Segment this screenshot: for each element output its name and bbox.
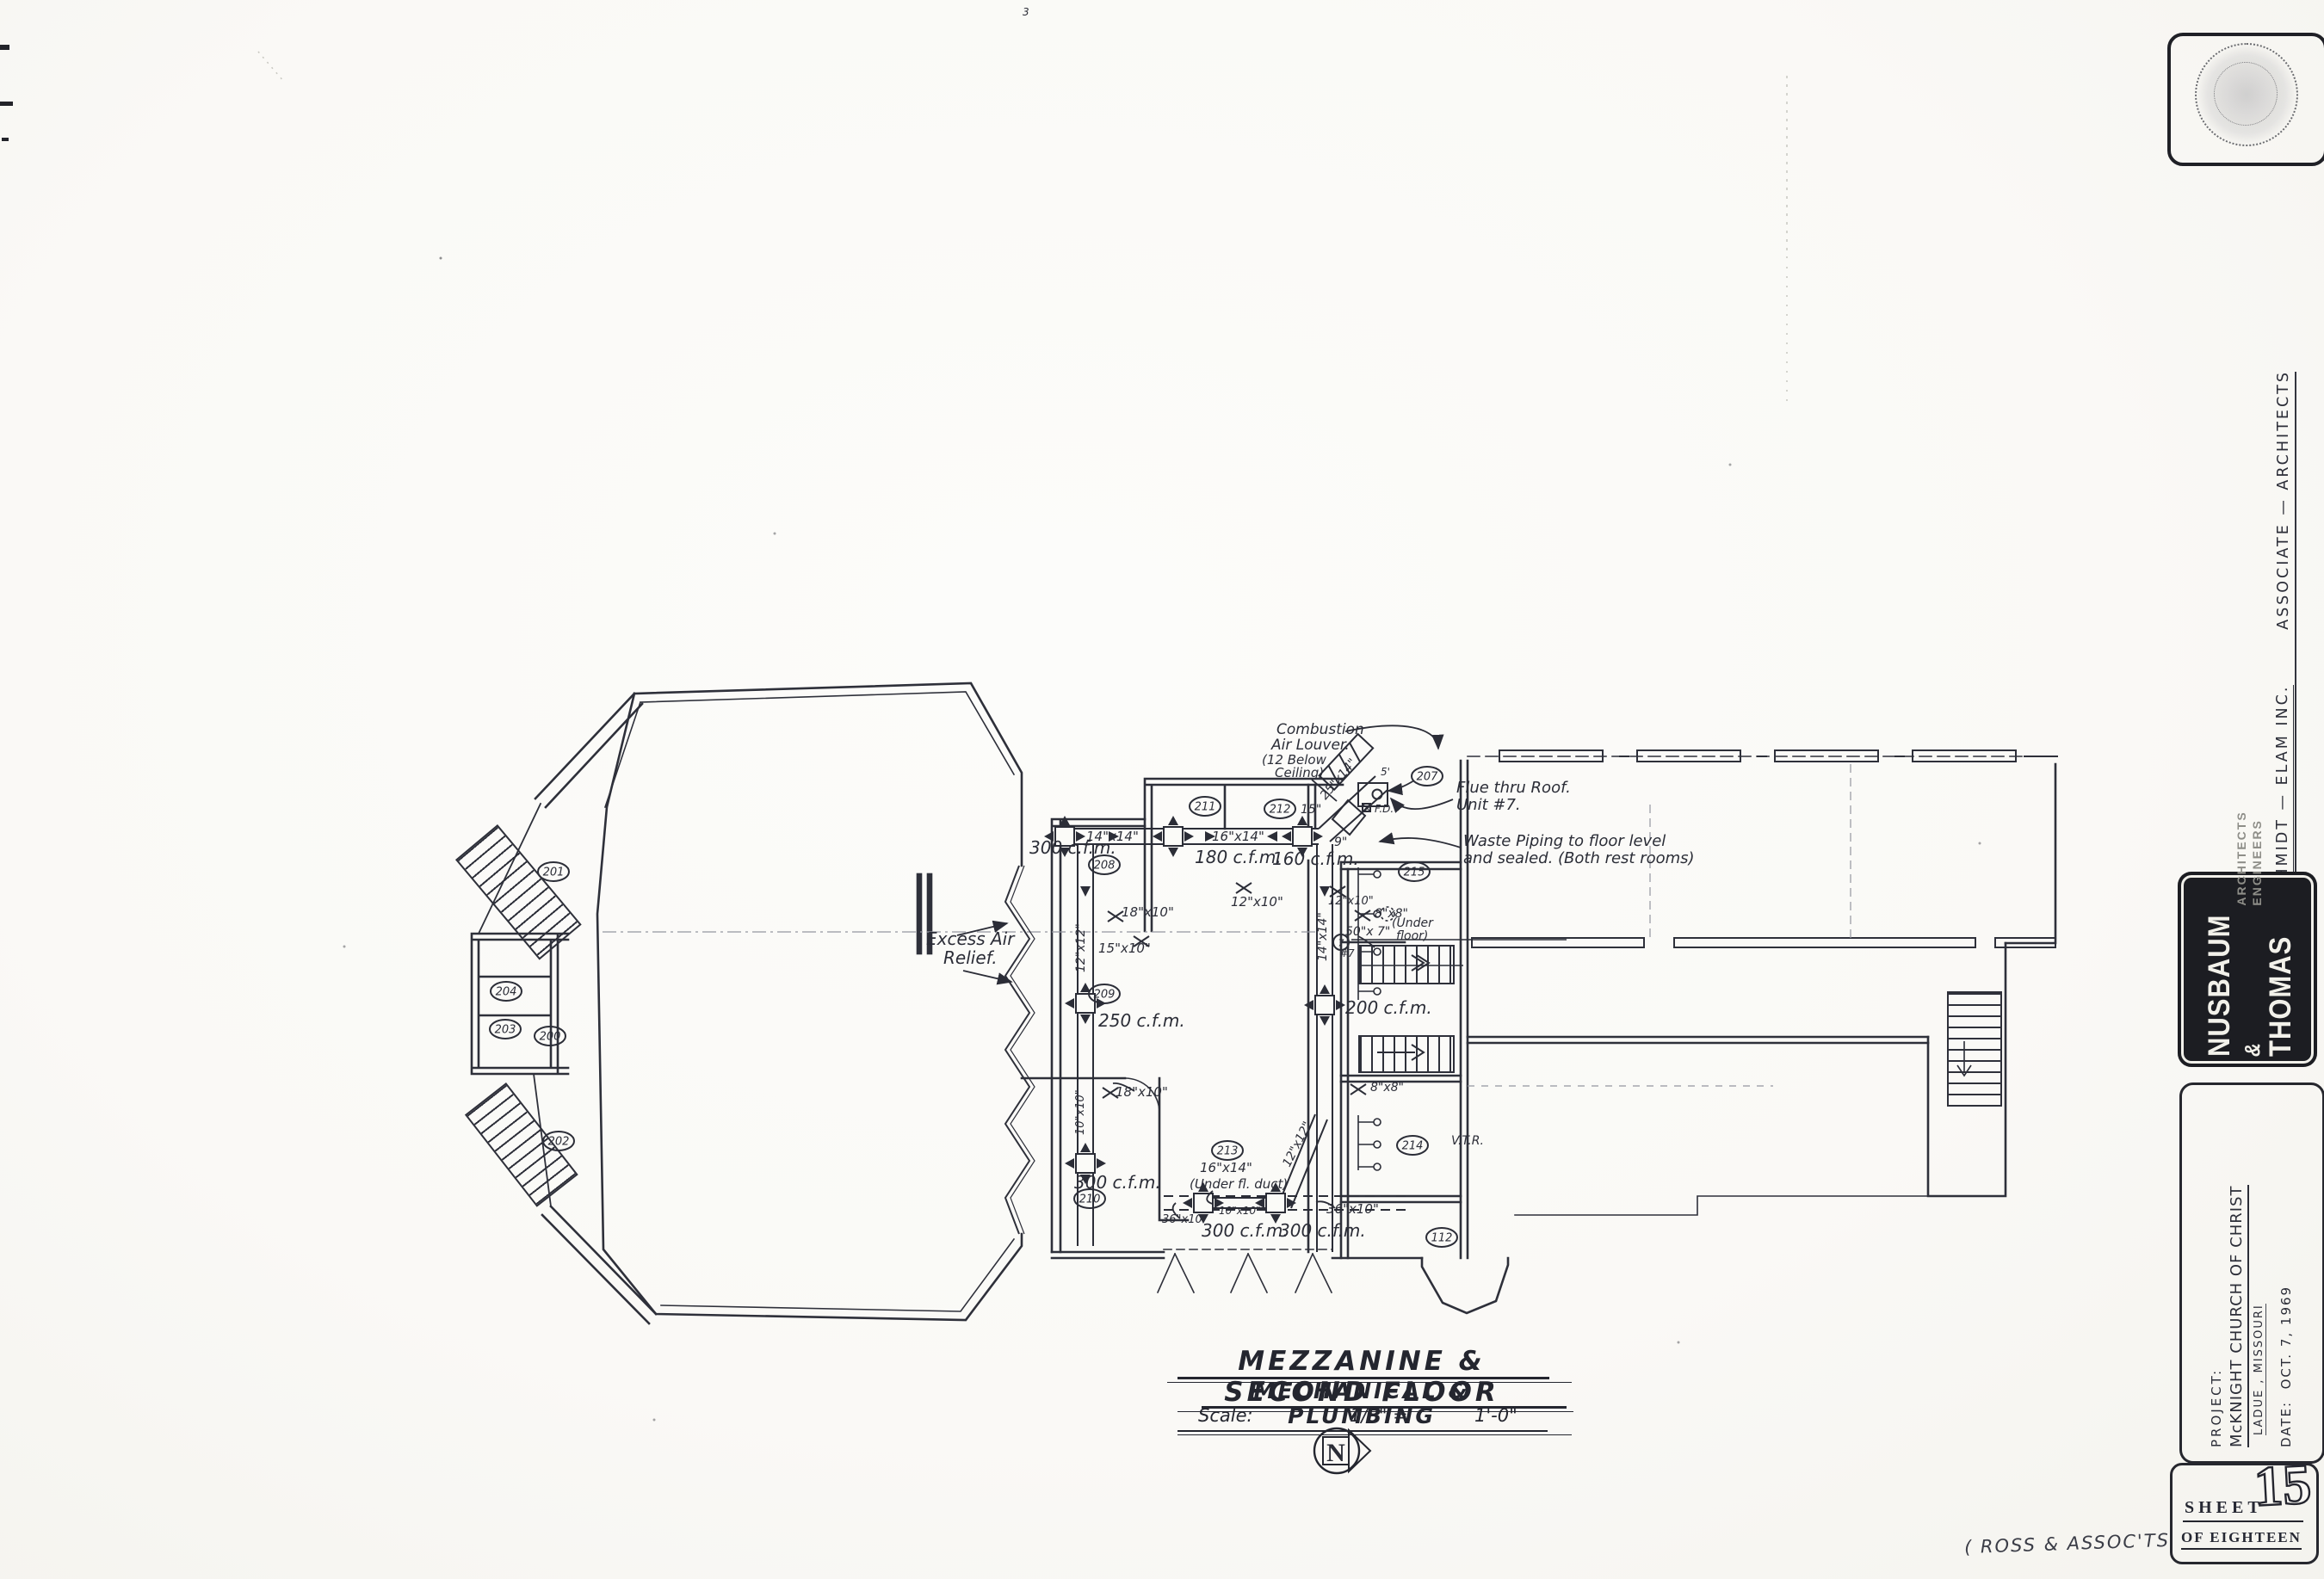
architect-side-text: SCHMIDT — ELAM INC. ASSOCIATE — ARCHITEC… [2271,370,2296,905]
stair-central-upper [1358,945,1455,984]
firm-name-1: NUSBAUM [2203,915,2234,1057]
auditorium-outline [597,683,1022,1320]
scale-underline [1177,1430,1548,1432]
room-number: 210 [1079,1194,1101,1206]
room-number: 112 [1431,1232,1453,1245]
firm-sub-architects: ARCHITECTS [2234,811,2249,905]
plan-label: 300 c.f.m. [1202,1220,1289,1241]
plan-label: Air Louver. [1270,737,1350,754]
plan-label: and sealed. (Both rest rooms) [1463,849,1695,867]
plan-label: 16"x14" [1212,829,1264,844]
firm-ampersand: & [2240,1042,2265,1057]
room-number: 204 [496,986,517,999]
plan-label: Unit #7. [1456,796,1521,814]
firm-logo-text: NUSBAUM & THOMAS ARCHITECTS ENGINEERS [2190,881,2309,1057]
plan-label: 36"x10" [1162,1213,1208,1226]
stair-east [1947,991,2002,1107]
stair-central-lower [1358,1035,1455,1073]
plan-label: 180 c.f.m. [1195,847,1282,867]
plan-label: 12"x10" [1231,894,1283,910]
plan-label: Flue thru Roof. [1456,779,1571,797]
plan-label: 15"x10" [1098,941,1151,956]
plan-label: 8"x8" [1370,1081,1404,1095]
plan-label: Relief. [943,947,998,968]
plan-labels: 300 c.f.m.14"x14"16"x14"180 c.f.m.160 c.… [926,6,1695,1467]
plan-label: 16"x14" [1200,1160,1252,1175]
date-value: OCT. 7, 1969 [2278,1286,2294,1389]
project-location: LADUE , MISSOURI [2253,1304,2266,1435]
room-number: 212 [1270,804,1291,817]
diffusers [1044,816,1345,1224]
excess-air-zigzag [1005,866,1035,1234]
room-number: 203 [495,1024,516,1037]
plan-label: Waste Piping to floor level [1463,832,1666,850]
room-number: 201 [543,867,565,879]
stair-arrows [1377,955,1971,1076]
room-number: 211 [1195,801,1216,814]
room-number: 7 [1338,938,1344,949]
plan-label: N [1326,1439,1345,1467]
plan-label: 5' [1381,766,1390,778]
plan-label: 14"x14" [1316,912,1330,961]
scale-label: Scale: [1198,1405,1253,1426]
plan-label: 9" [1334,836,1347,849]
plan-label: (Under [1392,916,1434,930]
west-rooms [472,934,568,1074]
plan-label: 18"x10" [1122,904,1174,920]
firm-sub-engineers: ENGINEERS [2249,811,2265,905]
room-number: 207 [1417,771,1439,784]
entry-bay [1422,1258,1508,1313]
firm-name-2: THOMAS [2263,936,2297,1057]
sheet-label: SHEET [2185,1498,2264,1518]
room-number: 208 [1094,860,1116,873]
plan-label: 250 c.f.m. [1098,1010,1185,1031]
floor-plan-drawing: 300 c.f.m.14"x14"16"x14"180 c.f.m.160 c.… [0,0,2324,1579]
sheet-number-box: SHEET 15 OF EIGHTEEN [2170,1463,2319,1564]
project-info-text: PROJECT: McKNIGHT CHURCH OF CHRIST LADUE… [2193,1090,2309,1447]
plan-label: 300 c.f.m. [1279,1220,1366,1241]
plan-label: 36"x10" [1326,1201,1379,1217]
plan-label: F.D. [1375,803,1394,815]
room-number: 215 [1404,867,1425,879]
plan-label: Combustion [1276,721,1364,738]
room-number: 200 [540,1031,561,1044]
plan-label: 12"x12" [1074,923,1088,972]
plan-label: 12"x10" [1328,895,1374,908]
room-number: 214 [1402,1140,1424,1153]
blueprint-sheet: 300 c.f.m.14"x14"16"x14"180 c.f.m.160 c.… [0,0,2324,1579]
plan-label: 10"x10" [1219,1205,1261,1217]
plan-label: 18"x10" [1116,1084,1168,1100]
plan-label: Ceiling) [1275,765,1324,780]
architect-role: ASSOCIATE — ARCHITECTS [2275,370,2292,630]
sheet-of: OF EIGHTEEN [2181,1529,2302,1550]
wing-walls [535,694,656,1323]
plan-label: (Under fl. duct) [1190,1176,1288,1192]
plan-label: 200 c.f.m. [1345,997,1432,1018]
scale-equation: 1/8" = [1350,1405,1408,1426]
room-number: 213 [1217,1145,1239,1158]
sheet-underline [2183,1520,2303,1522]
plan-label: floor) [1396,929,1428,943]
seal-inner-ring [2214,62,2278,126]
plan-label: 160 c.f.m. [1272,848,1359,869]
scale-value: 1'-0" [1474,1405,1517,1426]
plan-label: 10"x10" [1074,1089,1087,1135]
date-label: DATE: [2278,1401,2294,1447]
plan-label: 50"x 7" [1345,925,1390,939]
project-name: McKNIGHT CHURCH OF CHRIST [2228,1185,2249,1447]
scan-artifacts [258,52,1787,404]
scale-underline-2 [1177,1434,1572,1435]
plan-label: 14"x14" [1086,829,1139,844]
plan-label: V.T.R. [1451,1134,1484,1148]
plan-label: 3 [1023,6,1029,18]
plan-label: Excess Air [926,928,1016,949]
room-number: 209 [1094,989,1116,1002]
seal-box [2167,33,2324,166]
sheet-number: 15 [2253,1452,2313,1520]
plan-label: 15" [1301,803,1321,817]
project-label: PROJECT: [2209,1090,2224,1447]
